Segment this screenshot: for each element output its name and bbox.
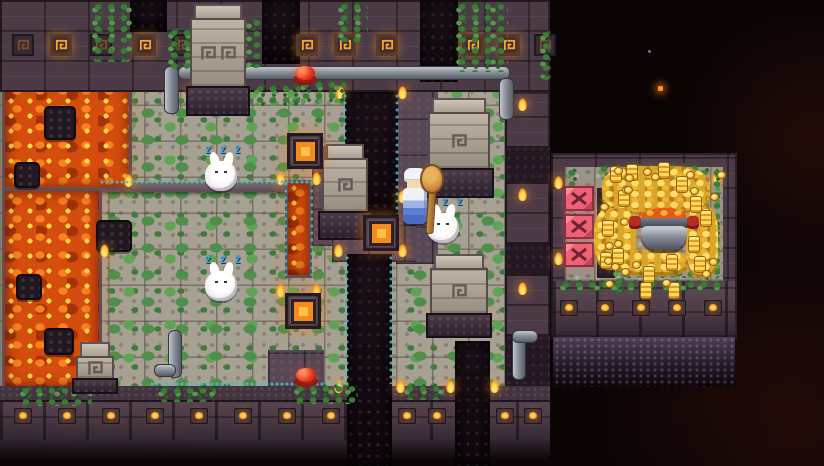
vine-patch [92,2,132,62]
wall-sconce [102,408,120,424]
sleeping-rabbit[interactable]: Z Z Z [204,146,240,194]
stone-statue [426,254,492,338]
wall-sconce [704,300,722,316]
player-character[interactable] [398,164,442,260]
vine-patch [404,384,444,400]
gold-coin [651,173,660,181]
rabbit-body [205,271,237,301]
gold-coin [686,171,695,179]
stone-statue-body [430,268,488,315]
pit-edge-vines [345,256,349,384]
stone-pillar-body [322,158,368,213]
treasure-fade [553,337,735,387]
coin-stack [602,220,614,237]
coin-stack [643,266,655,283]
lava-statue-base [72,378,118,394]
barrier-x-block[interactable] [564,214,594,239]
rune-block [296,34,318,56]
gold-coin [709,258,718,266]
rune-block [134,34,156,56]
pit-edge-vines [284,182,287,276]
wall-sconce [58,408,76,424]
pipe [512,330,538,343]
stone-tower-body [190,18,246,88]
torch-flame [554,252,563,265]
gold-coin [625,174,634,182]
gold-coin [620,218,629,226]
gold-coin [621,268,630,276]
wall-sconce [560,300,578,316]
torch-flame [518,282,527,295]
coin-stack [676,176,688,193]
vine-patch [158,386,216,402]
gold-coin [690,187,699,195]
east-wall-block [505,182,550,244]
wall-sconce [234,408,252,424]
lava-statue-body [76,356,114,380]
gold-coin [624,186,633,194]
torch-flame [100,244,109,257]
wall-sconce [428,408,446,424]
rabbit-closed-eyes [215,171,218,173]
barrier-x-block[interactable] [564,242,594,267]
pit-edge-vines [389,256,393,384]
doorway-south [455,341,490,466]
rabbit-body [205,161,237,191]
barrier-x-block[interactable] [564,186,594,211]
gold-coin [614,167,623,175]
gold-coin [605,280,614,288]
pit-edge-vines [310,182,313,276]
lava-rock [44,328,74,355]
stone-statue-body [428,112,490,170]
coin-stack [640,282,652,299]
dust-particle [648,50,651,53]
torch-flame [398,86,407,99]
gold-coin [614,240,623,248]
vine-patch [456,2,508,72]
treasure-pot[interactable] [632,200,696,256]
lava-rock [14,162,40,188]
wall-sconce [146,408,164,424]
gold-coin [605,242,614,250]
torch-flame [554,176,563,189]
rune-block [12,34,34,56]
gold-coin [702,270,711,278]
player-robe [403,188,427,224]
stone-tower-base [186,86,250,116]
sleeping-rabbit[interactable]: Z Z Z [204,256,240,304]
stone-statue-base [426,313,492,338]
spoon-icon [420,164,444,194]
rune-block [50,34,72,56]
lava-rock [44,106,76,140]
gold-coin [632,261,641,269]
coin-stack [700,210,712,227]
pot-handle [629,216,641,229]
wall-sconce [496,408,514,424]
pipe [154,364,176,377]
gold-coin [717,171,726,179]
wall-sconce [190,408,208,424]
gold-coin [611,263,620,271]
vine-patch [646,280,724,292]
pipe [164,66,179,114]
lava-channel [285,180,312,278]
wall-sconce [322,408,340,424]
ember-particle [658,86,663,91]
rune-block [376,34,398,56]
coin-stack [666,254,678,271]
red-button[interactable] [293,366,319,388]
torch-flame [276,284,285,297]
lava-rock [16,274,42,300]
pipe [499,78,514,120]
pot-body [641,226,687,250]
wall-sconce [668,300,686,316]
wall-sconce [632,300,650,316]
pressure-plate[interactable] [285,293,321,329]
game-viewport[interactable]: Z Z ZZ Z ZZ Z Z [0,0,824,466]
lava-statue [72,342,118,394]
wall-sconce [398,408,416,424]
gold-coin [710,193,719,201]
spoon-handle-icon [425,188,436,234]
doorway-north [130,0,167,32]
vine-patch [254,84,300,106]
red-button[interactable] [292,64,318,86]
gold-coin [662,279,671,287]
pressure-plate[interactable] [287,133,323,169]
wall-sconce [278,408,296,424]
vine-patch [540,30,552,80]
wall-sconce [524,408,542,424]
chasm [347,254,392,466]
torch-flame [518,188,527,201]
vine-patch [338,2,368,42]
torch-flame [446,380,455,393]
pot-handle [687,216,699,229]
vine-patch [560,280,644,294]
rabbit-closed-eyes [215,281,218,283]
stone-tower [186,4,250,116]
east-wall-block [505,274,550,336]
gold-coin [600,203,609,211]
torch-flame [518,98,527,111]
pit-edge-vines [150,382,350,386]
wall-sconce [596,300,614,316]
torch-flame [334,244,343,257]
pressure-plate[interactable] [363,215,399,251]
wall-sconce [14,408,32,424]
torch-flame [490,380,499,393]
doorway-north [262,0,300,64]
